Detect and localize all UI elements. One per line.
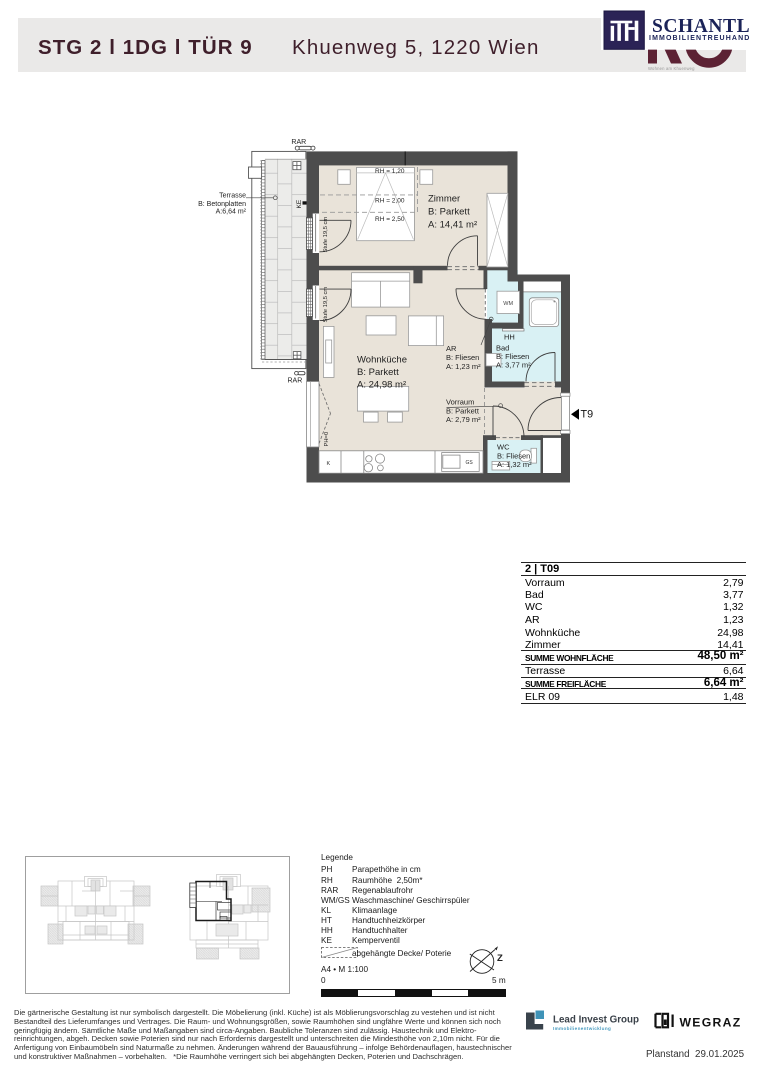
- svg-text:T9: T9: [581, 409, 594, 421]
- svg-text:WC: WC: [497, 443, 510, 452]
- svg-text:Wohnküche: Wohnküche: [357, 355, 407, 366]
- svg-text:KE: KE: [296, 199, 303, 208]
- svg-text:GS: GS: [466, 460, 474, 466]
- svg-text:B: Betonplatten: B: Betonplatten: [198, 201, 246, 208]
- svg-text:Stufe 19,5 cm: Stufe 19,5 cm: [323, 287, 329, 323]
- svg-text:A: 1,23 m²: A: 1,23 m²: [446, 362, 481, 371]
- svg-text:Immobilienentwicklung: Immobilienentwicklung: [553, 1026, 611, 1031]
- svg-text:K: K: [327, 461, 331, 467]
- svg-text:WEGRAZ: WEGRAZ: [680, 1016, 742, 1030]
- svg-text:A: 1,32 m²: A: 1,32 m²: [497, 460, 532, 469]
- svg-text:Z: Z: [497, 953, 503, 964]
- svg-text:WM: WM: [503, 301, 513, 307]
- svg-text:B: Parkett: B: Parkett: [357, 367, 399, 378]
- svg-text:PH=0: PH=0: [324, 432, 330, 447]
- svg-text:B: Fliesen: B: Fliesen: [446, 353, 479, 362]
- svg-text:RH = 1,20: RH = 1,20: [375, 168, 405, 175]
- svg-text:Wohnen am Khuenweg: Wohnen am Khuenweg: [648, 66, 695, 71]
- svg-text:HH: HH: [504, 333, 515, 342]
- svg-text:A: 2,79 m²: A: 2,79 m²: [446, 415, 481, 424]
- svg-text:A: 14,41 m²: A: 14,41 m²: [428, 220, 477, 231]
- svg-text:Zimmer: Zimmer: [428, 194, 460, 205]
- svg-text:RH = 2,00: RH = 2,00: [375, 197, 405, 204]
- svg-text:Terrasse: Terrasse: [219, 193, 246, 200]
- svg-text:RH = 2,50: RH = 2,50: [375, 216, 405, 223]
- svg-text:A: 3,77 m²: A: 3,77 m²: [496, 361, 531, 370]
- svg-text:AR: AR: [446, 344, 457, 353]
- svg-text:A: 24,98 m²: A: 24,98 m²: [357, 380, 406, 391]
- svg-text:A:6,64 m²: A:6,64 m²: [216, 209, 247, 216]
- svg-text:Stufe 19,5 cm: Stufe 19,5 cm: [323, 217, 329, 253]
- svg-text:RAR: RAR: [288, 378, 303, 385]
- svg-text:Vorraum: Vorraum: [446, 398, 474, 407]
- svg-text:RAR: RAR: [291, 139, 306, 146]
- svg-text:Lead Invest Group: Lead Invest Group: [553, 1015, 639, 1026]
- svg-text:B: Parkett: B: Parkett: [428, 207, 470, 218]
